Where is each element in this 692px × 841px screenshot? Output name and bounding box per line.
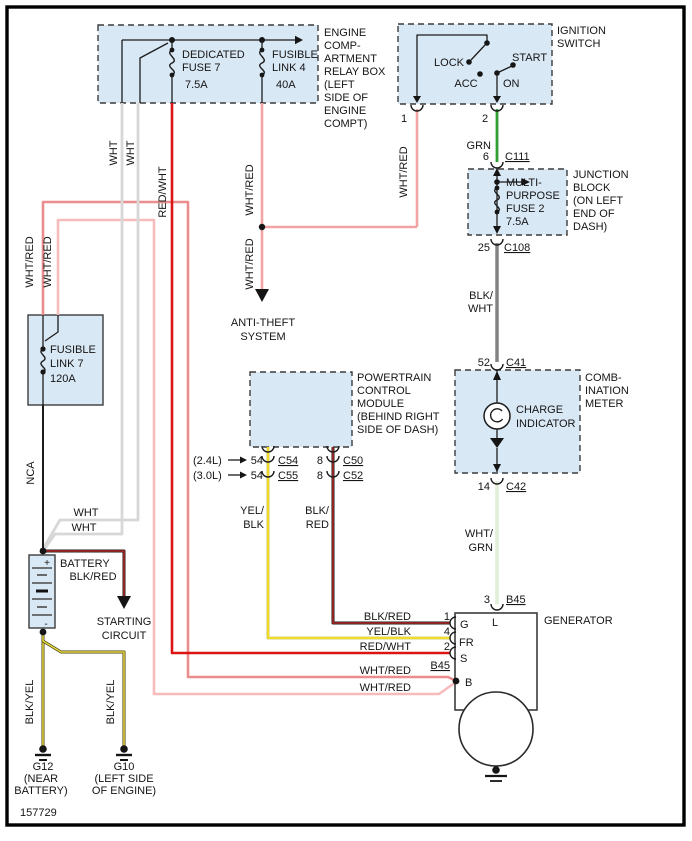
g10-label: G10 [114,761,135,773]
g12-ground-dot [39,745,47,753]
pcm-row1-pin54: 54 [251,455,263,467]
wire-label-nca: NCA [25,461,37,485]
charge-indicator-label: INDICATOR [516,418,576,430]
g10-location: OF ENGINE) [92,785,156,797]
relay-box-label-line: COMPT) [324,118,367,130]
pcm-row2-pin8: 8 [317,470,323,482]
connector-c55: C55 [278,470,298,482]
wire-label-blk-red: RED [306,519,329,531]
junction-label-line: JUNCTION [573,169,629,181]
wire-label-wht-red: WHT/RED [360,665,411,677]
link4-rating: 40A [276,79,296,91]
ignition-switch-box [398,24,552,104]
wire-label-wht-grn: WHT/ [465,528,494,540]
generator-body-circle [459,692,533,766]
generator-pin2: 2 [444,641,450,653]
pcm-row1-pin8: 8 [317,455,323,467]
relay-box-label-line: (LEFT [324,79,355,91]
junction-label-line: BLOCK [573,182,611,194]
charging-system-wiring-diagram: DEDICATED FUSE 7 7.5A FUSIBLE LINK 4 40A… [0,0,692,841]
generator-terminal-s: S [460,653,467,665]
fuse2-dot-bottom [495,210,500,215]
anti-theft-junction-dot [259,224,265,230]
wire-label-blk-yel: BLK/YEL [105,680,117,725]
link7-label: FUSIBLE [50,344,96,356]
relay-box-label-line: ENGINE [324,105,366,117]
g12-label: G12 [33,761,54,773]
relay-box-label-line: SIDE OF [324,92,368,104]
link4-label: LINK 4 [272,62,306,74]
wire-label-wht: WHT [73,507,98,519]
starting-circuit-label: CIRCUIT [102,630,147,642]
pcm-label-line: SIDE OF DASH) [357,424,438,436]
meter-label-line: INATION [585,385,629,397]
battery-minus-sign: - [44,619,47,630]
wire-label-red-wht: RED/WHT [360,641,412,653]
junction-label-line: DASH) [573,221,607,233]
ignition-start-label: START [512,52,547,64]
wire-label-wht-red: WHT/RED [244,238,256,289]
anti-theft-label: SYSTEM [240,331,285,343]
fuse2-label: PURPOSE [506,190,560,202]
fuse7-label: FUSE 7 [182,62,221,74]
connector-b45-top: B45 [506,594,526,606]
ignition-label-line: IGNITION [557,25,606,37]
wire-label-wht-grn: GRN [469,542,494,554]
connector-c50: C50 [343,455,363,467]
ignition-pin2-number: 2 [482,113,488,125]
wire-label-wht-red: WHT/RED [398,146,410,197]
generator-label: GENERATOR [544,615,613,627]
junction-label-line: END OF [573,208,615,220]
ignition-lock-dot [466,59,472,65]
blk-wht-label: WHT [468,303,493,315]
meter-pin14: 14 [478,481,490,493]
ignition-acc-label: ACC [454,78,477,90]
junction-pin25: 25 [478,242,490,254]
fuse7-label: DEDICATED [182,49,245,61]
pcm-label-line: POWERTRAIN [357,372,431,384]
ignition-pin1-number: 1 [401,113,407,125]
connector-c111: C111 [505,151,530,163]
wire-label-wht: WHT [108,140,120,165]
ignition-pivot-dot [484,40,490,46]
link7-label: LINK 7 [50,358,84,370]
generator-pin4: 4 [444,626,450,638]
anti-theft-label: ANTI-THEFT [231,317,295,329]
meter-label-line: METER [585,398,624,410]
battery-positive-terminal [40,548,47,555]
connector-c42: C42 [506,481,526,493]
connector-c52: C52 [343,470,363,482]
blk-wht-label: BLK/ [469,290,494,302]
wire-label-blk-red: BLK/RED [69,571,116,583]
wire-label-wht: WHT [71,522,96,534]
g10-ground-dot [120,745,128,753]
g12-location: BATTERY) [14,785,67,797]
wire-label-blk-red: BLK/RED [364,611,411,623]
pcm-row2-pin54: 54 [251,470,263,482]
link4-label: FUSIBLE [272,49,318,61]
wire-label-yel-blk: YEL/BLK [366,626,411,638]
starting-circuit-label: STARTING [97,616,152,628]
wire-label-red-wht: RED/WHT [157,166,169,218]
pcm-label-line: CONTROL [357,385,411,397]
pcm-label-line: MODULE [357,398,404,410]
fuse2-rating: 7.5A [506,216,529,228]
charge-indicator-bulb [484,403,510,429]
connector-b45-side: B45 [430,660,450,672]
ignition-acc-dot [477,71,483,77]
generator-ground-dot [492,766,500,774]
charge-indicator-label: CHARGE [516,404,563,416]
battery-negative-terminal [40,629,47,636]
generator-terminal-fr: FR [459,637,474,649]
fuse7-rating: 7.5A [185,79,208,91]
wire-label-wht-red: WHT/RED [360,682,411,694]
generator-pin1: 1 [444,611,450,623]
pcm-row1-engine: (2.4L) [193,455,222,467]
wire-label-blk-yel: BLK/YEL [24,680,36,725]
meter-pin52: 52 [478,357,490,369]
junction-label-line: (ON LEFT [573,195,623,207]
g12-location: (NEAR [24,773,58,785]
ignition-on-label: ON [503,78,520,90]
battery-plus-sign: + [44,558,50,569]
wire-label-yel-blk: YEL/ [240,505,265,517]
wiring-diagram-page: DEDICATED FUSE 7 7.5A FUSIBLE LINK 4 40A… [0,0,692,841]
wire-label-blk-red: BLK/ [305,505,330,517]
pcm-row2-engine: (3.0L) [193,470,222,482]
ignition-lock-label: LOCK [434,57,465,69]
generator-b-terminal-dot [453,678,460,685]
g10-location: (LEFT SIDE [94,773,153,785]
ignition-switch-label: IGNITION SWITCH [557,25,606,50]
connector-c108: C108 [504,242,530,254]
wire-label-wht-red: WHT/RED [244,164,256,215]
generator-pin3: 3 [484,594,490,606]
generator-terminal-b: B [465,677,472,689]
fuse2-label: FUSE 2 [506,203,545,215]
link7-rating: 120A [50,373,76,385]
wire-label-yel-blk: BLK [243,519,264,531]
connector-c54: C54 [278,455,298,467]
relay-box-label-line: COMP- [324,40,361,52]
junction-pin6: 6 [483,151,489,163]
pcm-label-line: (BEHIND RIGHT [357,411,440,423]
ignition-label-line: SWITCH [557,38,600,50]
powertrain-control-module-box [250,372,352,447]
generator-terminal-l: L [492,617,498,629]
wire-label-wht-red: WHT/RED [24,236,36,287]
relay-box-label-line: RELAY BOX [324,66,386,78]
relay-box-label-line: ENGINE [324,27,366,39]
wire-label-wht-red: WHT/RED [42,236,54,287]
wire-label-wht: WHT [125,140,137,165]
battery-label: BATTERY [60,558,110,570]
relay-box-label-line: ARTMENT [324,53,377,65]
generator-terminal-g: G [460,619,469,631]
connector-c41: C41 [506,357,526,369]
meter-label-line: COMB- [585,372,622,384]
fuse2-label: MULTI- [506,177,542,189]
diagram-number: 157729 [20,807,57,819]
